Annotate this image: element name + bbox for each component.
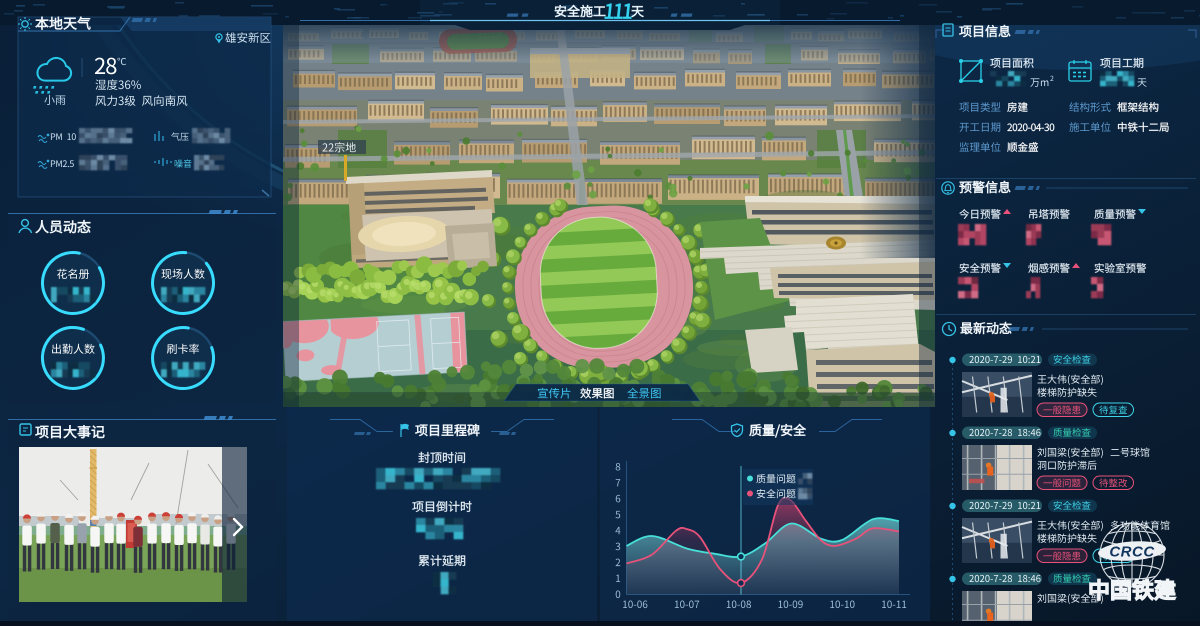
svg-text:CRCC: CRCC bbox=[1109, 544, 1155, 561]
